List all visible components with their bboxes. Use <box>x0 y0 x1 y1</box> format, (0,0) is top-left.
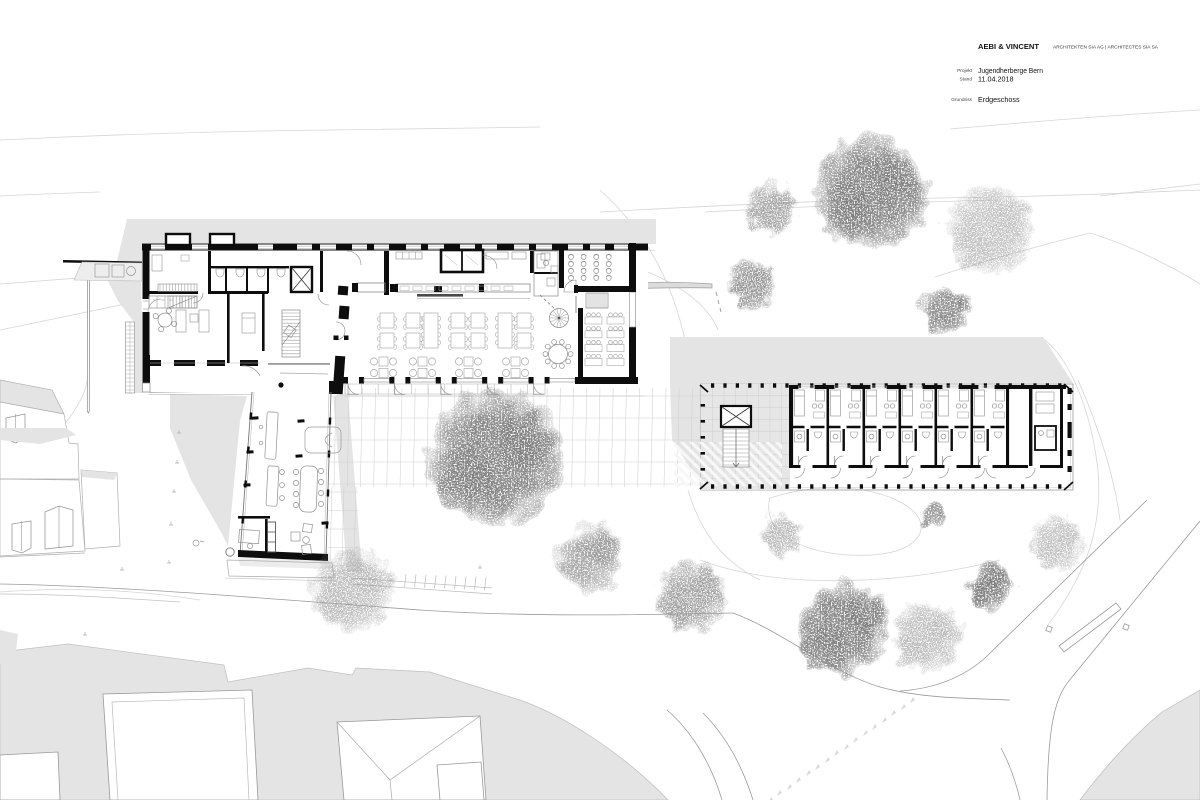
svg-text:Stand: Stand <box>959 77 972 83</box>
svg-text:Erdgeschoss: Erdgeschoss <box>978 95 1020 104</box>
svg-text:11.04.2018: 11.04.2018 <box>978 75 1013 84</box>
svg-text:Projekt: Projekt <box>957 68 973 74</box>
svg-text:AEBI & VINCENT: AEBI & VINCENT <box>978 44 1040 51</box>
svg-text:ARCHITEKTEN SIA AG | ARCHITECT: ARCHITEKTEN SIA AG | ARCHITECTES SIA SA <box>1053 45 1159 50</box>
svg-text:Grundriss: Grundriss <box>951 97 972 103</box>
